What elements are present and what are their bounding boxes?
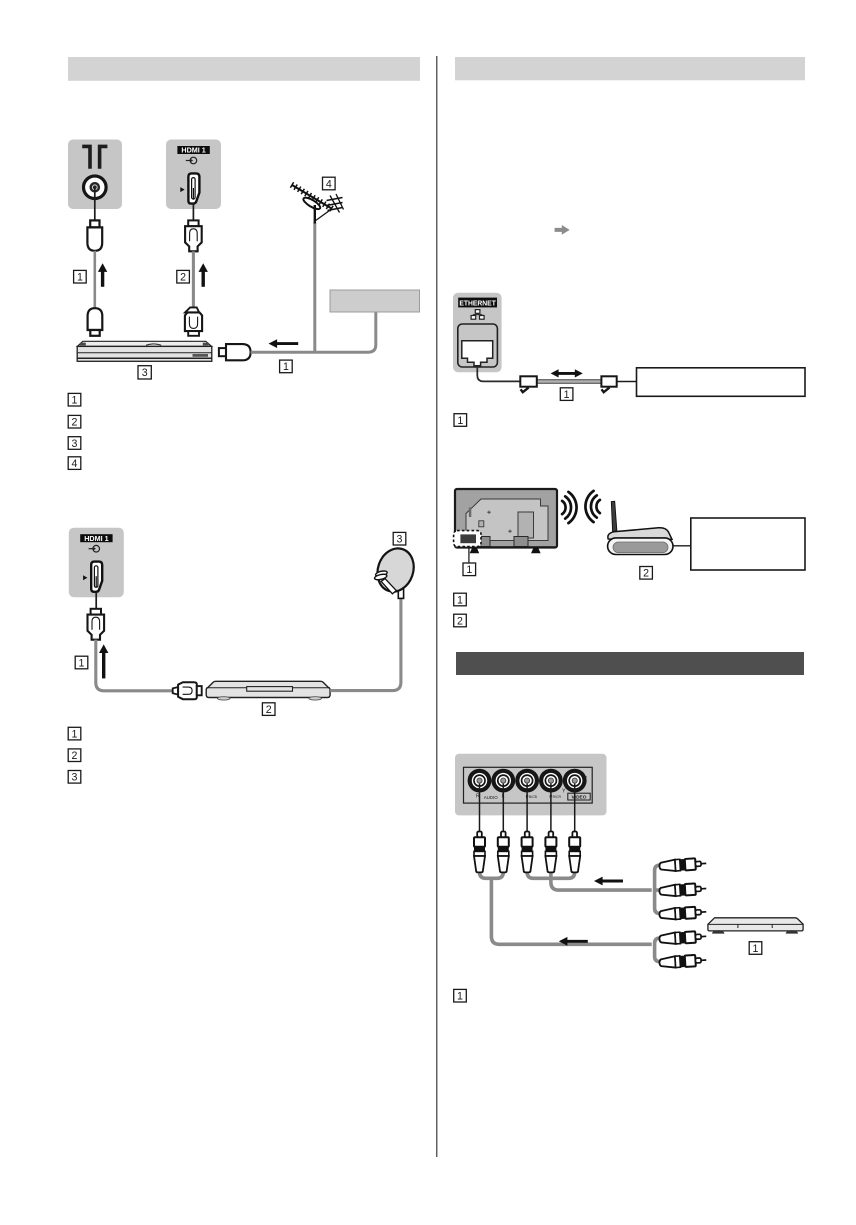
svg-text:1: 1 [79,657,85,669]
svg-text:1: 1 [72,395,78,407]
svg-text:1: 1 [72,728,78,740]
svg-text:2: 2 [72,417,78,429]
svg-text:3: 3 [397,534,403,546]
svg-text:B/CB: B/CB [529,795,538,799]
svg-text:1: 1 [564,389,570,401]
svg-text:ETHERNET: ETHERNET [459,298,496,307]
svg-text:3: 3 [72,772,78,784]
svg-text:4: 4 [326,178,332,190]
svg-text:1: 1 [457,415,463,427]
svg-text:3: 3 [142,367,148,379]
svg-text:2: 2 [457,615,463,627]
svg-text:1: 1 [753,943,759,955]
svg-text:2: 2 [72,750,78,762]
svg-text:1: 1 [457,594,463,606]
svg-text:AUDIO: AUDIO [484,795,498,800]
svg-text:2: 2 [643,568,649,580]
svg-text:1: 1 [466,564,472,576]
svg-text:1: 1 [457,991,463,1003]
svg-text:1: 1 [77,272,83,284]
svg-text:R/CR: R/CR [553,795,562,799]
svg-text:HDMI 1: HDMI 1 [181,146,205,155]
svg-text:3: 3 [72,438,78,450]
svg-text:1: 1 [283,361,289,373]
svg-text:2: 2 [266,704,272,716]
svg-text:4: 4 [72,458,78,470]
svg-text:VIDEO: VIDEO [572,795,587,801]
svg-text:2: 2 [180,272,186,284]
